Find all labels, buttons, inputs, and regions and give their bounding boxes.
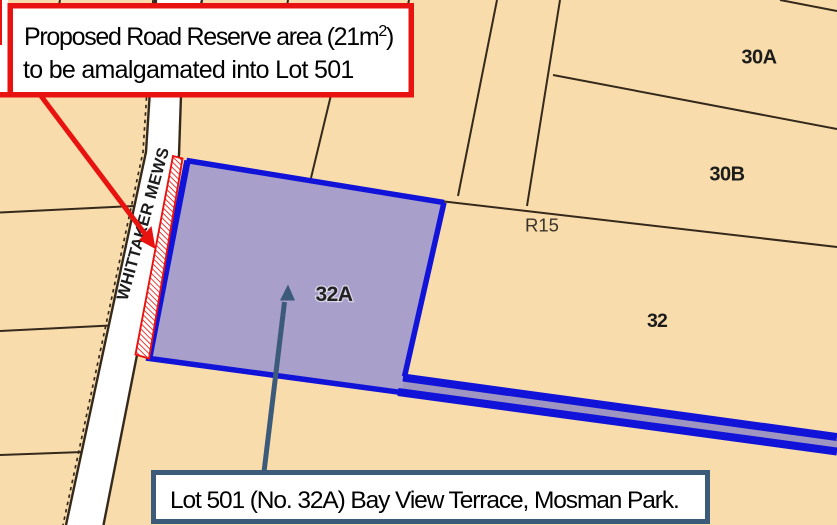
svg-text:R15: R15 [525, 215, 559, 236]
svg-text:30A: 30A [741, 47, 776, 69]
svg-text:30B: 30B [709, 164, 744, 186]
svg-text:32: 32 [647, 310, 668, 332]
svg-text:to be amalgamated into Lot 501: to be amalgamated into Lot 501 [23, 56, 354, 84]
svg-text:Lot 501 (No. 32A) Bay View Ter: Lot 501 (No. 32A) Bay View Terrace, Mosm… [170, 487, 679, 514]
svg-text:32A: 32A [315, 283, 352, 306]
svg-text:Proposed Road Reserve area (21: Proposed Road Reserve area (21m2) [24, 23, 393, 51]
